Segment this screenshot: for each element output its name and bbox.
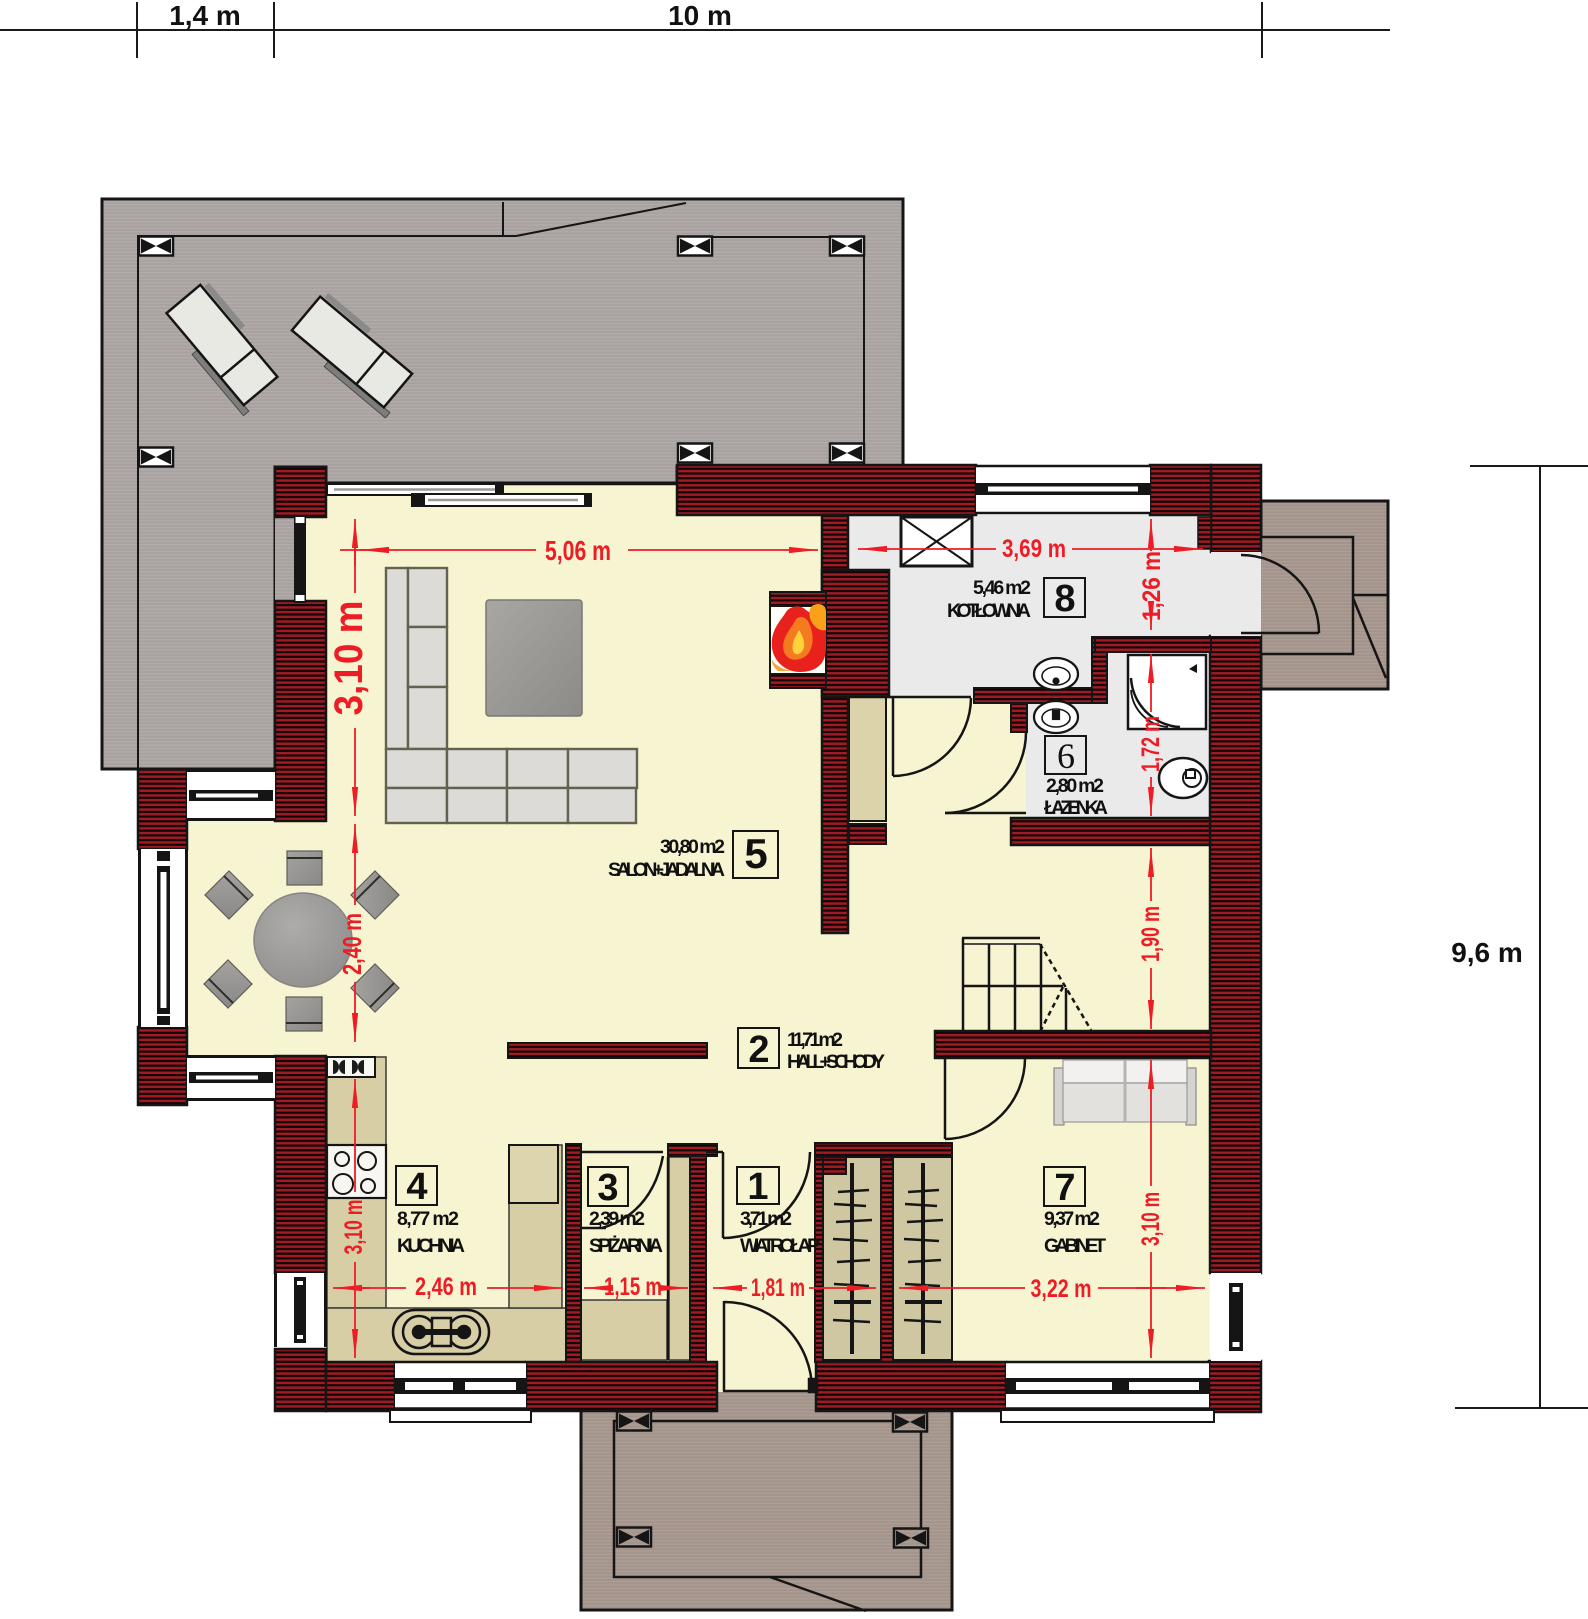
svg-text:10 m: 10 m — [668, 0, 732, 31]
svg-text:5,06 m: 5,06 m — [545, 535, 611, 566]
svg-text:11,71 m2: 11,71 m2 — [787, 1029, 843, 1051]
svg-text:SALON+JADALNIA: SALON+JADALNIA — [608, 859, 725, 881]
svg-text:KOTŁOWNIA: KOTŁOWNIA — [947, 600, 1031, 622]
svg-text:9,37 m2: 9,37 m2 — [1044, 1208, 1100, 1230]
svg-text:1: 1 — [747, 1166, 768, 1208]
svg-text:2: 2 — [748, 1029, 769, 1071]
svg-text:3,10 m: 3,10 m — [327, 601, 371, 716]
svg-text:9,6 m: 9,6 m — [1451, 937, 1523, 968]
svg-text:3,71 m2: 3,71 m2 — [740, 1208, 792, 1230]
svg-text:8,77 m2: 8,77 m2 — [397, 1208, 459, 1230]
svg-text:1,81 m: 1,81 m — [751, 1274, 805, 1302]
svg-text:2,46 m: 2,46 m — [415, 1273, 477, 1301]
svg-text:1,90 m: 1,90 m — [1137, 906, 1165, 962]
svg-text:1,15 m: 1,15 m — [604, 1273, 662, 1301]
svg-text:ŁAZIENKA: ŁAZIENKA — [1044, 797, 1108, 819]
svg-text:1,72 m: 1,72 m — [1137, 716, 1165, 772]
svg-text:30,80 m2: 30,80 m2 — [660, 836, 725, 858]
svg-text:3,10 m: 3,10 m — [1137, 1192, 1165, 1246]
svg-text:4: 4 — [406, 1166, 427, 1208]
svg-text:5,46 m2: 5,46 m2 — [973, 577, 1031, 599]
svg-text:6: 6 — [1057, 736, 1075, 776]
svg-text:WIATROŁAP: WIATROŁAP — [740, 1235, 820, 1257]
svg-text:3,10 m: 3,10 m — [340, 1200, 368, 1255]
svg-text:8: 8 — [1054, 578, 1075, 620]
svg-text:1,26 m: 1,26 m — [1138, 551, 1166, 621]
svg-text:1,4 m: 1,4 m — [169, 0, 241, 31]
svg-text:2,40 m: 2,40 m — [337, 913, 367, 975]
svg-text:KUCHNIA: KUCHNIA — [397, 1235, 465, 1257]
svg-text:3,22 m: 3,22 m — [1031, 1275, 1092, 1303]
svg-text:3,69 m: 3,69 m — [1002, 535, 1066, 563]
svg-text:2,39 m2: 2,39 m2 — [589, 1208, 645, 1230]
svg-text:3: 3 — [597, 1167, 618, 1209]
svg-text:2,80 m2: 2,80 m2 — [1046, 775, 1104, 797]
svg-text:5: 5 — [744, 830, 767, 877]
svg-text:HALL+SCHODY: HALL+SCHODY — [787, 1051, 885, 1073]
svg-text:GABINET: GABINET — [1044, 1235, 1106, 1257]
svg-text:SPIŻARNIA: SPIŻARNIA — [589, 1234, 663, 1257]
svg-text:7: 7 — [1054, 1167, 1075, 1209]
